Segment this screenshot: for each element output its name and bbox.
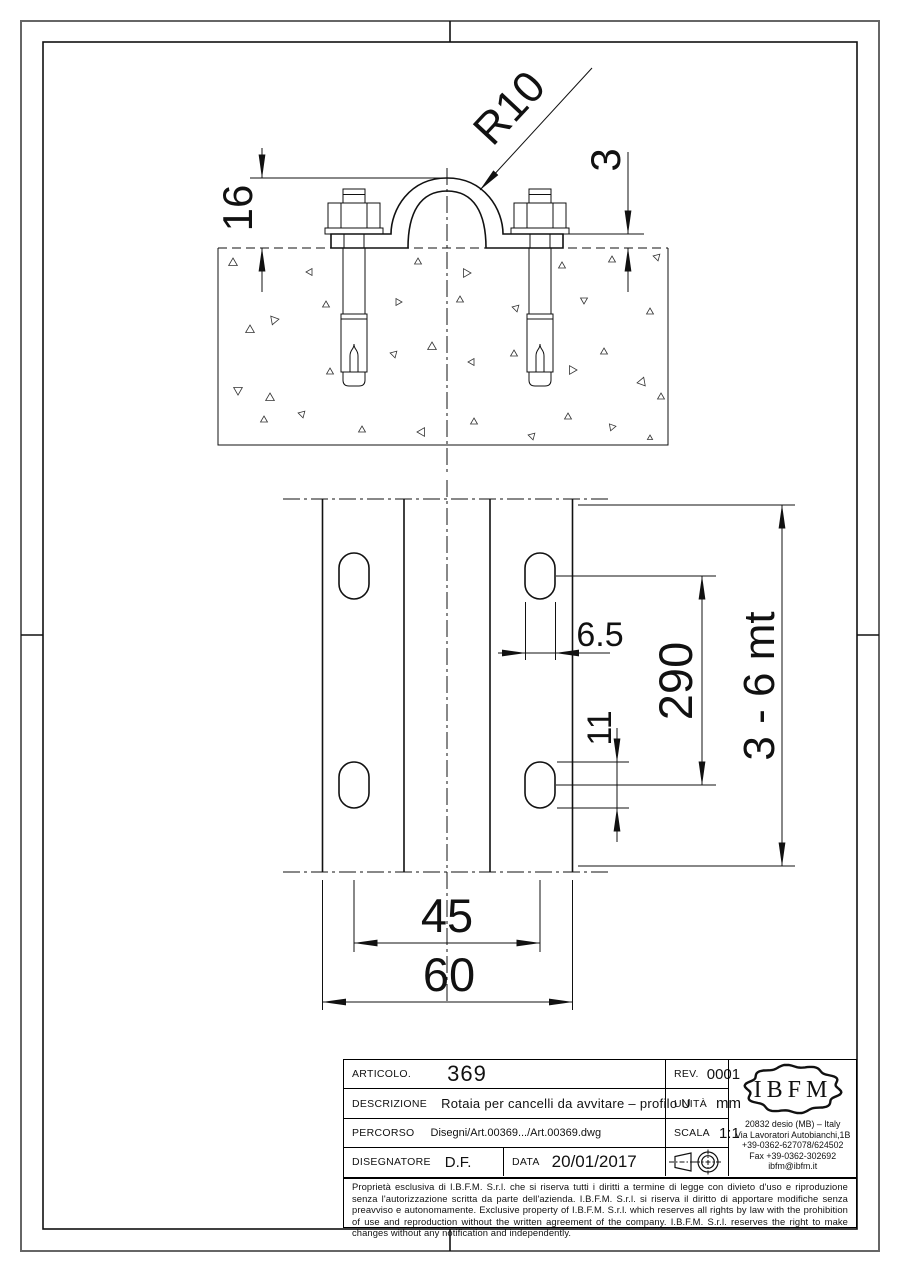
articolo-cell: ARTICOLO. 369 <box>344 1060 666 1089</box>
anchor-bolt-right <box>511 189 569 386</box>
descrizione-cell: DESCRIZIONE Rotaia per cancelli da avvit… <box>344 1089 666 1119</box>
articolo-label: ARTICOLO. <box>344 1068 411 1080</box>
company-address-line: +39-0362-627078/624502 <box>742 1140 844 1151</box>
unita-cell: UNITÀ mm <box>666 1089 728 1119</box>
articolo-value: 369 <box>447 1061 487 1087</box>
svg-text:3: 3 <box>582 148 629 171</box>
anchor-bolt-left <box>325 189 383 386</box>
data-value: 20/01/2017 <box>552 1152 637 1172</box>
descrizione-value: Rotaia per cancelli da avvitare – profil… <box>441 1096 691 1111</box>
svg-text:60: 60 <box>423 948 475 1001</box>
company-address-line: Fax +39-0362-302692 <box>749 1151 836 1162</box>
data-label: DATA <box>504 1156 540 1168</box>
projection-cell <box>666 1148 728 1176</box>
dim-thickness: 3 <box>563 148 644 292</box>
company-cell: IBFM 20832 desio (MB) – Italy Via Lavora… <box>728 1060 856 1176</box>
svg-text:290: 290 <box>649 642 702 720</box>
percorso-value: Disegni/Art.00369.../Art.00369.dwg <box>431 1127 602 1139</box>
dim-hole-spacing: 45 <box>354 880 540 952</box>
plan-view: 290 6.5 11 3 - 6 mt <box>283 480 795 1010</box>
scala-cell: SCALA 1:1 <box>666 1119 728 1148</box>
legal-notice: Proprietà esclusiva di I.B.F.M. S.r.l. c… <box>343 1178 857 1228</box>
company-address-line: Via Lavoratori Autobianchi,1B <box>735 1130 850 1141</box>
drawing-sheet: 16 3 R10 <box>0 0 900 1272</box>
svg-text:16: 16 <box>214 185 261 232</box>
title-block: ARTICOLO. 369 REV. 0001 DESCRIZIONE Rota… <box>343 1059 857 1178</box>
concrete-block <box>218 248 668 445</box>
svg-text:11: 11 <box>581 710 619 745</box>
disegnatore-label: DISEGNATORE <box>344 1156 431 1168</box>
descrizione-label: DESCRIZIONE <box>344 1098 427 1110</box>
rev-cell: REV. 0001 <box>666 1060 728 1089</box>
svg-text:45: 45 <box>421 889 473 942</box>
section-view: 16 3 R10 <box>214 62 668 472</box>
rev-label: REV. <box>666 1068 699 1080</box>
data-cell: DATA 20/01/2017 <box>504 1148 666 1176</box>
ibfm-logo: IBFM <box>741 1061 845 1119</box>
scala-label: SCALA <box>666 1127 710 1139</box>
first-angle-projection-icon <box>667 1148 727 1176</box>
dim-slot-length: 11 <box>557 710 629 842</box>
svg-text:3 - 6 mt: 3 - 6 mt <box>735 611 784 760</box>
unita-label: UNITÀ <box>666 1098 707 1110</box>
svg-text:R10: R10 <box>464 62 555 154</box>
dim-slot-width: 6.5 <box>498 602 624 660</box>
disegnatore-cell: DISEGNATORE D.F. <box>344 1148 504 1176</box>
company-address-line: 20832 desio (MB) – Italy <box>745 1119 840 1130</box>
dim-radius: R10 <box>464 62 592 190</box>
percorso-cell: PERCORSO Disegni/Art.00369.../Art.00369.… <box>344 1119 666 1148</box>
percorso-label: PERCORSO <box>344 1127 415 1139</box>
company-email: ibfm@ibfm.it <box>768 1161 817 1172</box>
dim-hole-pitch: 290 <box>556 576 716 785</box>
svg-text:6.5: 6.5 <box>576 616 623 654</box>
ibfm-logo-text: IBFM <box>753 1077 832 1103</box>
disegnatore-value: D.F. <box>445 1154 472 1171</box>
